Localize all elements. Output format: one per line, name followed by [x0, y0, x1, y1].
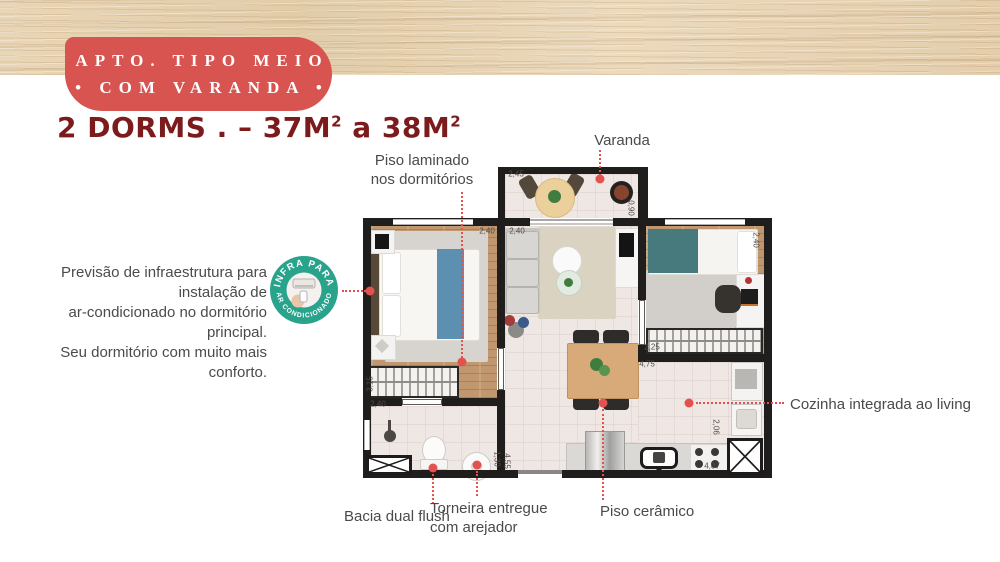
bed-runner — [437, 249, 464, 339]
balcony-table-plant — [548, 190, 561, 203]
infra-leader-line — [342, 290, 366, 292]
infra-note-line3: Seu dormitório com muito mais conforto. — [8, 343, 267, 383]
faucet-leader-line — [476, 471, 478, 496]
infra-note-line1: Previsão de infraestrutura para instalaç… — [8, 263, 267, 303]
toilet-leader-dot — [429, 464, 438, 473]
balcony-leader-dot — [596, 175, 605, 184]
infra-note: Previsão de infraestrutura para instalaç… — [8, 263, 267, 383]
apartment-type-badge: APTO. TIPO MEIO • COM VARANDA • — [65, 37, 332, 111]
sofa-cushion-3 — [506, 287, 539, 314]
kitchen-leader-dot — [685, 399, 694, 408]
infra-ac-seal: INFRA PARA AR CONDICIONADO — [270, 256, 338, 324]
flooring-label-line2: nos dormitórios — [350, 170, 494, 189]
coffee-table-plant — [564, 278, 573, 287]
dining-plant-2 — [599, 365, 610, 376]
laptop — [741, 289, 758, 306]
flooring-label-line1: Piso laminado — [350, 151, 494, 170]
shaft-right — [727, 438, 763, 475]
infra-note-line2: ar-condicionado no dormitório principal. — [8, 303, 267, 343]
faucet-label: Torneira entregue com arejador — [430, 499, 548, 537]
kitchen-label: Cozinha integrada ao living — [790, 395, 971, 414]
bedroom2-window — [665, 219, 745, 225]
faucet-label-line1: Torneira entregue — [430, 499, 548, 518]
dim-balcony-width: 2,45 — [508, 170, 524, 179]
title-text: 2 DORMS . – 37M — [57, 111, 331, 144]
dim-master-width: 2,40 — [479, 227, 495, 236]
dim-kitchen-depth: 2,06 — [712, 419, 721, 435]
infra-ac-seal-graphic: INFRA PARA AR CONDICIONADO — [270, 256, 338, 324]
flooring-leader-line — [461, 192, 463, 358]
dim-hall-length: 4,55 — [503, 453, 512, 469]
faucet-leader-dot — [473, 461, 482, 470]
shower-head — [384, 430, 396, 442]
title-text2: a 38M — [342, 111, 450, 144]
bathroom-door-leaf — [402, 399, 442, 405]
floor-plant-blue — [518, 317, 529, 328]
shaft-left — [366, 455, 412, 475]
dim-master-length: 3,15 — [366, 376, 375, 392]
bathroom-window — [364, 420, 370, 450]
dim-bedroom2-width: 2,40 — [752, 232, 761, 248]
bed-pillow-top — [382, 252, 401, 294]
sofa-cushion-2 — [506, 259, 539, 287]
dim-living-length: 4,75 — [639, 360, 655, 369]
badge-line2: • COM VARANDA • — [68, 78, 329, 98]
kitchen-sink-basin — [653, 452, 665, 463]
microwave-door — [735, 369, 757, 389]
dim-living-width: 2,40 — [509, 227, 525, 236]
dim-counter-length: 4,07 — [704, 462, 720, 471]
dim-bathroom-width: 2,40 — [370, 400, 386, 409]
flooring-leader-dot — [458, 358, 467, 367]
bedroom2-bottom-wall — [638, 354, 764, 362]
floor-plant-red — [504, 315, 515, 326]
living-tv — [619, 233, 634, 257]
bed-pillow-bottom — [382, 295, 401, 337]
burner-2 — [711, 448, 719, 456]
dining-chair-1 — [573, 330, 599, 344]
ceramic-leader-line — [602, 409, 604, 500]
bedroom2-living-wall — [638, 226, 646, 300]
single-bed-blanket — [648, 229, 698, 273]
burner-1 — [695, 448, 703, 456]
desk-decor — [745, 277, 752, 284]
page-title: 2 DORMS . – 37M2 a 38M2 — [57, 111, 461, 144]
sliding-door-rail-2 — [530, 223, 613, 225]
fridge — [585, 431, 625, 474]
burner-3 — [695, 460, 703, 468]
title-sup2: 2 — [450, 113, 461, 131]
entry-door-leaf — [518, 470, 562, 474]
second-wardrobe — [646, 328, 763, 354]
right-wall — [764, 218, 772, 478]
badge-line1: APTO. TIPO MEIO — [68, 51, 328, 71]
master-door-leaf — [498, 348, 504, 390]
grill-coals — [614, 185, 629, 200]
title-sup1: 2 — [331, 113, 342, 131]
bedroom-tv — [375, 234, 389, 249]
master-wardrobe — [367, 366, 459, 398]
dim-bathroom-depth: 1,30 — [493, 451, 502, 467]
laundry-tank-basin — [736, 409, 757, 429]
faucet-label-line2: com arejador — [430, 518, 548, 537]
infra-leader-dot — [366, 287, 375, 296]
dining-chair-2 — [603, 330, 629, 344]
dim-bedroom2-wardrobe: 2,25 — [644, 343, 660, 352]
sliding-door-rail-1 — [530, 219, 613, 221]
balcony-label: Varanda — [582, 131, 662, 150]
kitchen-leader-line — [696, 402, 784, 404]
flooring-label: Piso laminado nos dormitórios — [350, 151, 494, 189]
bedroom2-door-leaf — [639, 300, 645, 345]
ceramic-label: Piso cerâmico — [600, 502, 694, 521]
balcony-leader-line — [599, 150, 601, 176]
ceramic-leader-dot — [599, 399, 608, 408]
desk-chair — [715, 285, 741, 313]
bathroom-top-wall-right — [442, 398, 505, 406]
dim-balcony-depth: 0,90 — [627, 200, 636, 216]
master-living-wall — [497, 226, 505, 348]
